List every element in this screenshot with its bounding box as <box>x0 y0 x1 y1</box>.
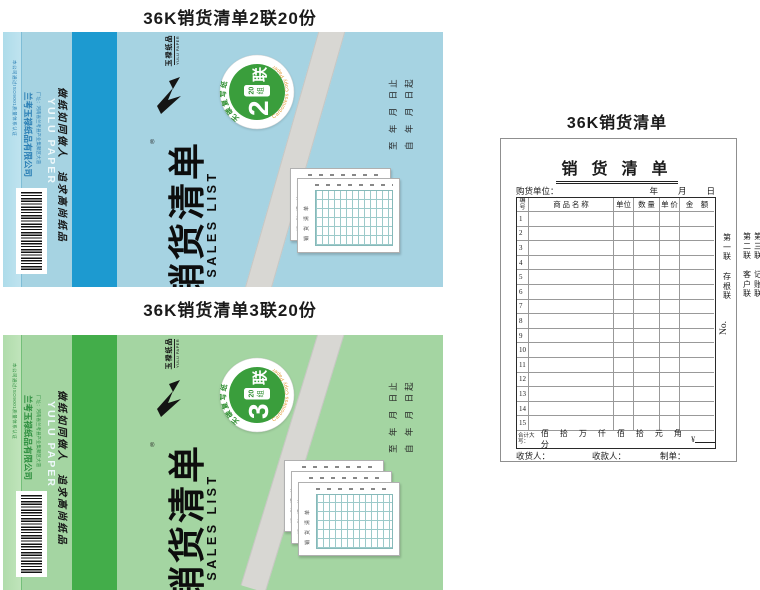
form-title: 销 货 清 单 <box>556 155 678 184</box>
mini-form-preview: 销货清单 <box>297 178 400 253</box>
cover-title-cn: 销货清单 <box>163 148 205 287</box>
cell-unit <box>614 387 634 402</box>
cell-price <box>660 402 680 417</box>
mini-form-grid <box>315 190 393 246</box>
cell-amount <box>680 227 714 242</box>
cell-amount <box>680 387 714 402</box>
cell-amount <box>680 300 714 315</box>
cashier-label: 收款人： <box>592 450 626 462</box>
cell-price <box>660 329 680 344</box>
barcode <box>16 188 47 274</box>
cell-price <box>660 300 680 315</box>
cell-unit <box>614 212 634 227</box>
cell-amount <box>680 373 714 388</box>
brand-logo-en: YULU PAPER <box>174 36 180 65</box>
col-header-unit: 单位 <box>614 198 634 212</box>
cover-title-en: SALES LIST <box>204 158 220 287</box>
cell-amount <box>680 212 714 227</box>
amount-blank <box>695 435 715 443</box>
brand-logo: 玉禄纸品 YULU PAPER <box>158 340 186 367</box>
table-row: 5 <box>517 270 715 285</box>
col-header-amount: 金 额 <box>680 198 714 212</box>
table-row: 1 <box>517 212 715 227</box>
mini-form-header <box>316 488 393 490</box>
row-number: 2 <box>517 227 529 242</box>
cell-price <box>660 212 680 227</box>
row-number: 10 <box>517 343 529 358</box>
row-number: 6 <box>517 285 529 300</box>
cell-qty <box>634 343 660 358</box>
cell-price <box>660 270 680 285</box>
form-buyer-line: 购货单位： 年 月 日 <box>516 185 716 197</box>
cover-spine-strip <box>72 335 117 590</box>
form-signature-line: 收货人： 收款人： 制单： <box>516 450 721 462</box>
cell-unit <box>614 329 634 344</box>
copy3-label: 第三联 <box>753 232 760 261</box>
caption-3ply: 36K销货清单3联20份 <box>20 296 440 321</box>
cell-price <box>660 358 680 373</box>
brand-slogan: 做纸如同做人 追求高尚纸品 <box>58 87 70 233</box>
cell-price <box>660 343 680 358</box>
table-row: 8 <box>517 314 715 329</box>
cell-price <box>660 314 680 329</box>
row-number: 13 <box>517 387 529 402</box>
mini-form-grid <box>316 494 393 549</box>
total-units: 佰 拾 万 仟 佰 拾 元 角 分 <box>541 428 689 450</box>
caption-form: 36K销货清单 <box>492 109 742 133</box>
badge-lian: 联 <box>252 66 269 82</box>
barcode-bars <box>21 495 42 573</box>
cell-product <box>529 373 614 388</box>
cover-3ply: 本公司通过ISO9001质量体系认证 兰考玉禄纸品有限公司 厂址：河南省兰考县产… <box>3 335 443 590</box>
mini-form-header <box>315 184 393 186</box>
cover-2ply: 本公司通过ISO9001质量体系认证 兰考玉禄纸品有限公司 厂址：河南省兰考县产… <box>3 32 443 287</box>
cell-qty <box>634 256 660 271</box>
col-header-qty: 数 量 <box>634 198 660 212</box>
cell-product <box>529 387 614 402</box>
cell-amount <box>680 402 714 417</box>
badge-per: 20 <box>249 390 256 398</box>
table-row: 13 <box>517 387 715 402</box>
cell-amount <box>680 314 714 329</box>
brand-slogan: 做纸如同做人 追求高尚纸品 <box>58 390 70 536</box>
badge-number: 2 <box>243 100 274 116</box>
preparer-label: 制单： <box>660 450 686 462</box>
col-header-no: 编号 <box>517 198 529 212</box>
row-number: 15 <box>517 416 529 431</box>
table-total-row: 合计大写： 佰 拾 万 仟 佰 拾 元 角 分 ¥ <box>517 431 715 448</box>
cell-product <box>529 329 614 344</box>
date-to-line: 至 年 月 日止 <box>387 347 398 453</box>
cell-qty <box>634 285 660 300</box>
table-row: 11 <box>517 358 715 373</box>
cell-unit <box>614 314 634 329</box>
cell-amount <box>680 343 714 358</box>
cell-unit <box>614 402 634 417</box>
form-table: 编号 商 品 名 称 单位 数 量 单 价 金 额 1 2 3 <box>516 197 716 449</box>
brand-logo-cn: 玉禄纸品 <box>164 338 174 370</box>
mini-form-title: 销货清单 <box>302 187 311 241</box>
cell-product <box>529 212 614 227</box>
cell-amount <box>680 329 714 344</box>
company-name: 兰考玉禄纸品有限公司 <box>23 92 34 154</box>
mini-form-header <box>309 477 385 479</box>
cell-unit <box>614 227 634 242</box>
cell-unit <box>614 343 634 358</box>
row-number: 7 <box>517 300 529 315</box>
swallow-logo-icon <box>153 76 183 116</box>
table-row: 12 <box>517 373 715 388</box>
date-labels: 年 月 日 <box>649 185 716 197</box>
cert-line: 本公司通过ISO9001质量体系认证 <box>11 363 18 475</box>
receiver-label: 收货人： <box>516 450 550 462</box>
cell-product <box>529 270 614 285</box>
buyer-label: 购货单位： <box>516 185 559 197</box>
cell-qty <box>634 300 660 315</box>
cell-amount <box>680 358 714 373</box>
no-label: No. <box>719 313 731 335</box>
cell-amount <box>680 241 714 256</box>
cell-qty <box>634 227 660 242</box>
mini-form-header <box>308 174 384 176</box>
company-name: 兰考玉禄纸品有限公司 <box>23 395 34 457</box>
ply-badge: 无碳复写纸 Carbonless Copy Paper 3 20 组 联 <box>219 357 295 433</box>
barcode <box>16 491 47 577</box>
col-header-product: 商 品 名 称 <box>529 198 614 212</box>
row-number: 3 <box>517 241 529 256</box>
cell-qty <box>634 314 660 329</box>
row-number: 4 <box>517 256 529 271</box>
row-number: 1 <box>517 212 529 227</box>
cell-price <box>660 241 680 256</box>
cell-product <box>529 300 614 315</box>
cell-qty <box>634 387 660 402</box>
cell-price <box>660 285 680 300</box>
table-row: 2 <box>517 227 715 242</box>
date-from-line: 自 年 月 日起 <box>403 44 414 150</box>
table-header-row: 编号 商 品 名 称 单位 数 量 单 价 金 额 <box>517 198 715 212</box>
copy2-label: 第二联 <box>742 232 752 261</box>
brand-logo-en: YULU PAPER <box>174 339 180 368</box>
cell-product <box>529 241 614 256</box>
cell-product <box>529 227 614 242</box>
copy1-name: 存根联 <box>722 272 732 301</box>
table-row: 7 <box>517 300 715 315</box>
company-address: 厂址：河南省兰考县产业集聚区大道 <box>35 395 41 455</box>
company-address: 厂址：河南省兰考县产业集聚区大道 <box>35 92 41 152</box>
registered-mark: ® <box>150 140 154 146</box>
cell-product <box>529 358 614 373</box>
cell-product <box>529 256 614 271</box>
table-row: 10 <box>517 343 715 358</box>
cell-product <box>529 402 614 417</box>
registered-mark: ® <box>150 443 154 449</box>
badge-per: 20 <box>249 87 256 95</box>
cell-qty <box>634 270 660 285</box>
barcode-bars <box>21 192 42 270</box>
cell-product <box>529 343 614 358</box>
row-number: 14 <box>517 402 529 417</box>
badge-number: 3 <box>243 403 274 419</box>
table-row: 9 <box>517 329 715 344</box>
swallow-logo-icon <box>153 379 183 419</box>
copy3-name: 记账联 <box>753 270 760 299</box>
badge-unit: 组 <box>255 390 265 398</box>
cell-unit <box>614 358 634 373</box>
row-number: 8 <box>517 314 529 329</box>
mini-form-preview: 销货清单 <box>298 482 400 556</box>
cell-price <box>660 227 680 242</box>
mini-form-header <box>302 466 377 468</box>
cell-product <box>529 314 614 329</box>
cell-unit <box>614 241 634 256</box>
table-row: 4 <box>517 256 715 271</box>
ply-badge: 无碳复写纸 Carbonless Copy Paper 2 20 组 联 <box>219 54 295 130</box>
cover-spine-strip <box>72 32 117 287</box>
row-number: 5 <box>517 270 529 285</box>
cell-qty <box>634 329 660 344</box>
table-row: 6 <box>517 285 715 300</box>
cell-unit <box>614 270 634 285</box>
cell-unit <box>614 373 634 388</box>
cell-unit <box>614 285 634 300</box>
cell-qty <box>634 402 660 417</box>
brand-logo-cn: 玉禄纸品 <box>164 35 174 67</box>
row-number: 9 <box>517 329 529 344</box>
cell-qty <box>634 212 660 227</box>
cert-line: 本公司通过ISO9001质量体系认证 <box>11 60 18 172</box>
cover-title-cn: 销货清单 <box>163 451 205 590</box>
row-number: 12 <box>517 373 529 388</box>
date-to-line: 至 年 月 日止 <box>387 44 398 150</box>
cell-product <box>529 285 614 300</box>
badge-unit: 组 <box>255 87 265 95</box>
cell-qty <box>634 241 660 256</box>
cell-price <box>660 387 680 402</box>
cell-amount <box>680 270 714 285</box>
cell-amount <box>680 285 714 300</box>
cell-qty <box>634 373 660 388</box>
brand-logo: 玉禄纸品 YULU PAPER <box>158 37 186 64</box>
badge-lian: 联 <box>252 369 269 385</box>
mini-form-title: 销货清单 <box>303 491 312 545</box>
cell-price <box>660 373 680 388</box>
cell-unit <box>614 256 634 271</box>
table-row: 14 <box>517 402 715 417</box>
cell-price <box>660 256 680 271</box>
copy2-name: 客户联 <box>742 270 752 299</box>
cell-qty <box>634 358 660 373</box>
table-row: 3 <box>517 241 715 256</box>
caption-2ply: 36K销货清单2联20份 <box>20 4 440 29</box>
cell-unit <box>614 300 634 315</box>
total-label: 合计大写： <box>517 433 537 447</box>
cover-title-en: SALES LIST <box>204 461 220 590</box>
copy1-label: 第一联 <box>722 233 732 262</box>
row-number: 11 <box>517 358 529 373</box>
sales-list-form: 销 货 清 单 购货单位： 年 月 日 编号 商 品 名 称 单位 数 量 单 … <box>500 138 737 462</box>
col-header-price: 单 价 <box>660 198 680 212</box>
date-from-line: 自 年 月 日起 <box>403 347 414 453</box>
cell-amount <box>680 256 714 271</box>
catalog-page: { "captions": { "blue": "36K销货清单2联20份", … <box>0 0 760 575</box>
